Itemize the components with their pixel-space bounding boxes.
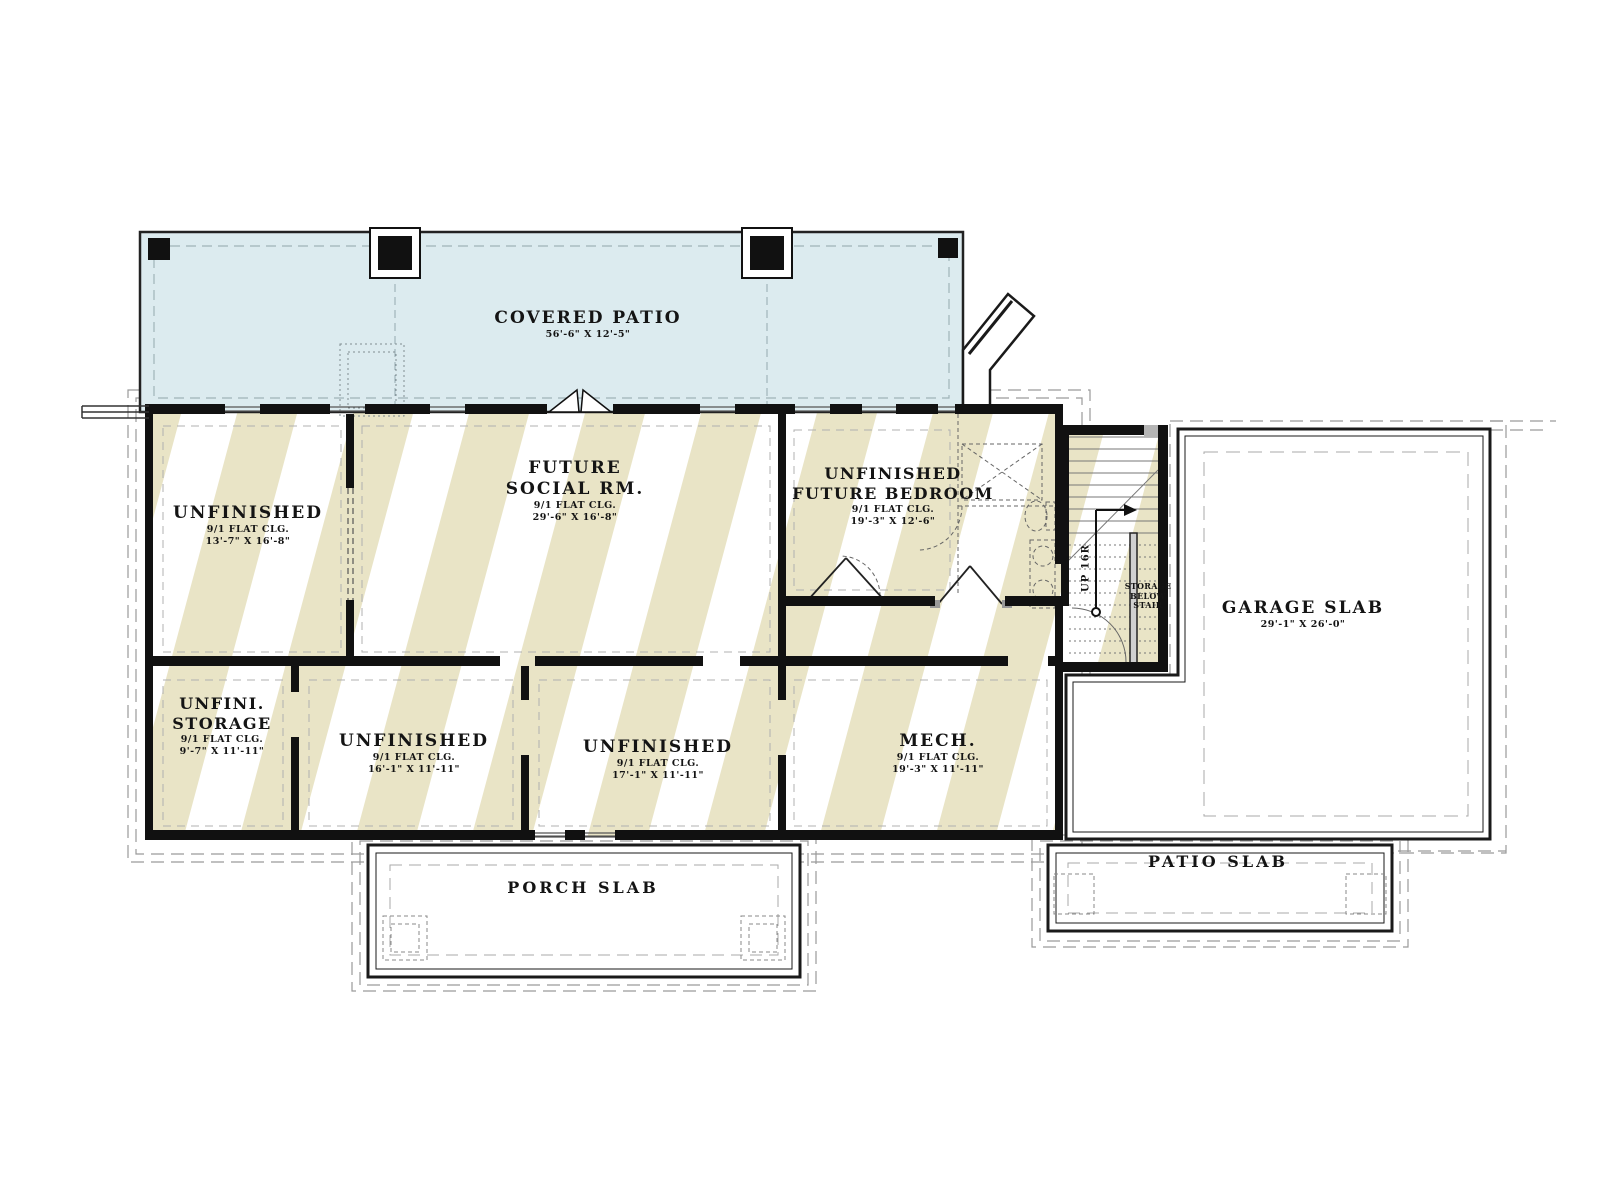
room-label-mech: MECH. 9/1 FLAT CLG. 19'-3" X 11'-11": [892, 731, 984, 775]
unfinished-s-dims: 17'-1" X 11'-11": [583, 770, 733, 782]
floor-plan-canvas: COVERED PATIO 56'-6" X 12'-5" UNFINISHED…: [0, 0, 1600, 1200]
room-label-patio-slab: PATIO SLAB: [1148, 852, 1288, 871]
future-bedroom-clg: 9/1 FLAT CLG.: [792, 504, 994, 516]
covered-patio-name: COVERED PATIO: [494, 308, 681, 329]
future-social-name1: FUTURE: [506, 458, 645, 479]
unfinished-s-clg: 9/1 FLAT CLG.: [583, 758, 733, 770]
future-social-name2: SOCIAL RM.: [506, 479, 645, 500]
mech-dims: 19'-3" X 11'-11": [892, 764, 984, 776]
chimney-angled-wall: [963, 294, 1034, 412]
unfinished-nw-dims: 13'-7" X 16'-8": [173, 536, 323, 548]
room-label-future-social: FUTURE SOCIAL RM. 9/1 FLAT CLG. 29'-6" X…: [506, 458, 645, 523]
unfin-storage-dims: 9'-7" X 11'-11": [172, 746, 271, 758]
garage-slab-name: GARAGE SLAB: [1222, 598, 1384, 619]
room-label-future-bedroom: UNFINISHED FUTURE BEDROOM 9/1 FLAT CLG. …: [792, 464, 994, 527]
future-bedroom-dims: 19'-3" X 12'-6": [792, 516, 994, 528]
room-label-covered-patio: COVERED PATIO 56'-6" X 12'-5": [494, 308, 681, 341]
unfin-storage-name2: STORAGE: [172, 714, 271, 734]
covered-patio-dims: 56'-6" X 12'-5": [494, 329, 681, 341]
room-label-garage-slab: GARAGE SLAB 29'-1" X 26'-0": [1222, 598, 1384, 631]
unfin-storage-name1: UNFINI.: [172, 694, 271, 714]
room-label-unfinished-s: UNFINISHED 9/1 FLAT CLG. 17'-1" X 11'-11…: [583, 737, 733, 781]
future-bedroom-name2: FUTURE BEDROOM: [792, 484, 994, 504]
unfinished-s-name: UNFINISHED: [583, 737, 733, 758]
future-social-dims: 29'-6" X 16'-8": [506, 512, 645, 524]
unfinished-sw-clg: 9/1 FLAT CLG.: [339, 752, 489, 764]
unfin-storage-clg: 9/1 FLAT CLG.: [172, 734, 271, 746]
stair-up-label: UP 16R: [1081, 544, 1092, 592]
garage-slab-dims: 29'-1" X 26'-0": [1222, 619, 1384, 631]
stair-storage-label: STORAGE BELOW STAIR: [1125, 582, 1172, 611]
unfinished-nw-name: UNFINISHED: [173, 503, 323, 524]
room-label-porch-slab: PORCH SLAB: [507, 878, 658, 897]
mech-clg: 9/1 FLAT CLG.: [892, 752, 984, 764]
room-label-unfin-storage: UNFINI. STORAGE 9/1 FLAT CLG. 9'-7" X 11…: [172, 694, 271, 757]
unfinished-sw-name: UNFINISHED: [339, 731, 489, 752]
porch-slab-outline: [368, 845, 800, 977]
porch-slab-name: PORCH SLAB: [507, 878, 658, 897]
unfinished-sw-dims: 16'-1" X 11'-11": [339, 764, 489, 776]
patio-slab-name: PATIO SLAB: [1148, 852, 1288, 871]
stair-storage-line3: STAIR: [1125, 601, 1172, 611]
future-social-clg: 9/1 FLAT CLG.: [506, 500, 645, 512]
future-bedroom-name1: UNFINISHED: [792, 464, 994, 484]
room-label-unfinished-nw: UNFINISHED 9/1 FLAT CLG. 13'-7" X 16'-8": [173, 503, 323, 547]
unfinished-nw-clg: 9/1 FLAT CLG.: [173, 524, 323, 536]
mech-name: MECH.: [892, 731, 984, 752]
room-label-unfinished-sw: UNFINISHED 9/1 FLAT CLG. 16'-1" X 11'-11…: [339, 731, 489, 775]
